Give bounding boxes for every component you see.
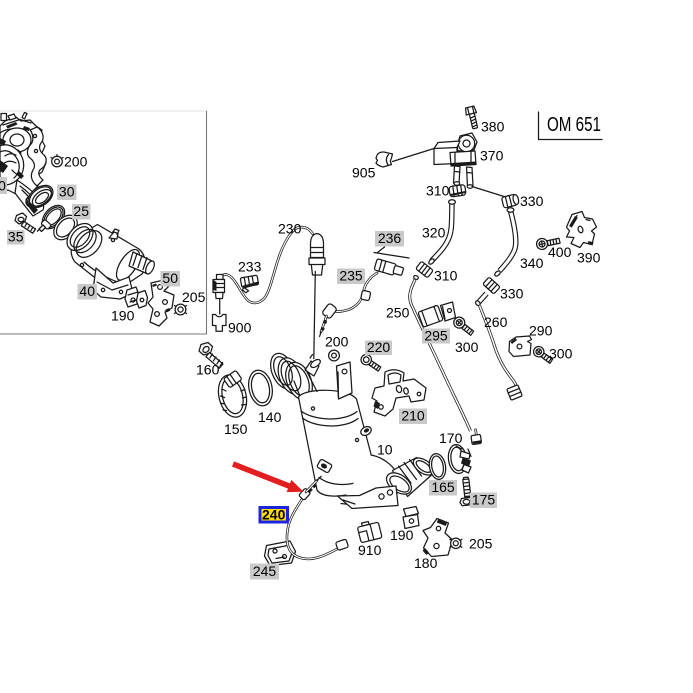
svg-text:220: 220 bbox=[367, 339, 391, 355]
svg-text:190: 190 bbox=[111, 308, 135, 324]
svg-text:205: 205 bbox=[182, 289, 206, 305]
svg-text:190: 190 bbox=[390, 527, 414, 543]
svg-text:30: 30 bbox=[59, 184, 75, 200]
svg-text:160: 160 bbox=[196, 362, 220, 378]
svg-text:50: 50 bbox=[162, 270, 178, 286]
svg-text:240: 240 bbox=[262, 507, 286, 523]
svg-text:235: 235 bbox=[339, 268, 363, 284]
svg-text:905: 905 bbox=[352, 165, 376, 181]
svg-text:233: 233 bbox=[238, 259, 262, 275]
svg-text:290: 290 bbox=[529, 323, 553, 339]
svg-text:175: 175 bbox=[472, 492, 496, 508]
svg-text:OM 651: OM 651 bbox=[547, 114, 601, 136]
svg-text:210: 210 bbox=[401, 408, 425, 424]
svg-text:0: 0 bbox=[0, 178, 6, 194]
svg-text:340: 340 bbox=[520, 255, 544, 271]
svg-text:330: 330 bbox=[500, 286, 524, 302]
svg-text:200: 200 bbox=[64, 154, 88, 170]
svg-text:250: 250 bbox=[386, 305, 410, 321]
svg-text:370: 370 bbox=[480, 148, 504, 164]
svg-text:260: 260 bbox=[484, 314, 508, 330]
svg-text:35: 35 bbox=[8, 229, 24, 245]
svg-text:170: 170 bbox=[439, 430, 463, 446]
svg-text:205: 205 bbox=[469, 536, 493, 552]
svg-text:910: 910 bbox=[358, 542, 382, 558]
svg-text:230: 230 bbox=[278, 221, 302, 237]
svg-text:300: 300 bbox=[549, 346, 573, 362]
svg-text:165: 165 bbox=[431, 479, 455, 495]
svg-text:310: 310 bbox=[426, 183, 450, 199]
svg-text:900: 900 bbox=[228, 320, 252, 336]
svg-text:25: 25 bbox=[73, 203, 89, 219]
svg-text:40: 40 bbox=[79, 283, 95, 299]
svg-text:330: 330 bbox=[520, 193, 544, 209]
svg-text:380: 380 bbox=[481, 119, 505, 135]
svg-text:245: 245 bbox=[253, 563, 277, 579]
svg-text:10: 10 bbox=[377, 442, 393, 458]
svg-text:400: 400 bbox=[548, 244, 572, 260]
svg-text:295: 295 bbox=[424, 328, 448, 344]
svg-text:300: 300 bbox=[455, 339, 479, 355]
svg-text:310: 310 bbox=[434, 268, 458, 284]
svg-text:180: 180 bbox=[414, 555, 438, 571]
svg-text:236: 236 bbox=[378, 230, 402, 246]
svg-text:200: 200 bbox=[325, 334, 349, 350]
svg-text:390: 390 bbox=[577, 250, 601, 266]
svg-text:320: 320 bbox=[422, 225, 446, 241]
svg-text:150: 150 bbox=[224, 421, 248, 437]
svg-text:140: 140 bbox=[258, 409, 282, 425]
